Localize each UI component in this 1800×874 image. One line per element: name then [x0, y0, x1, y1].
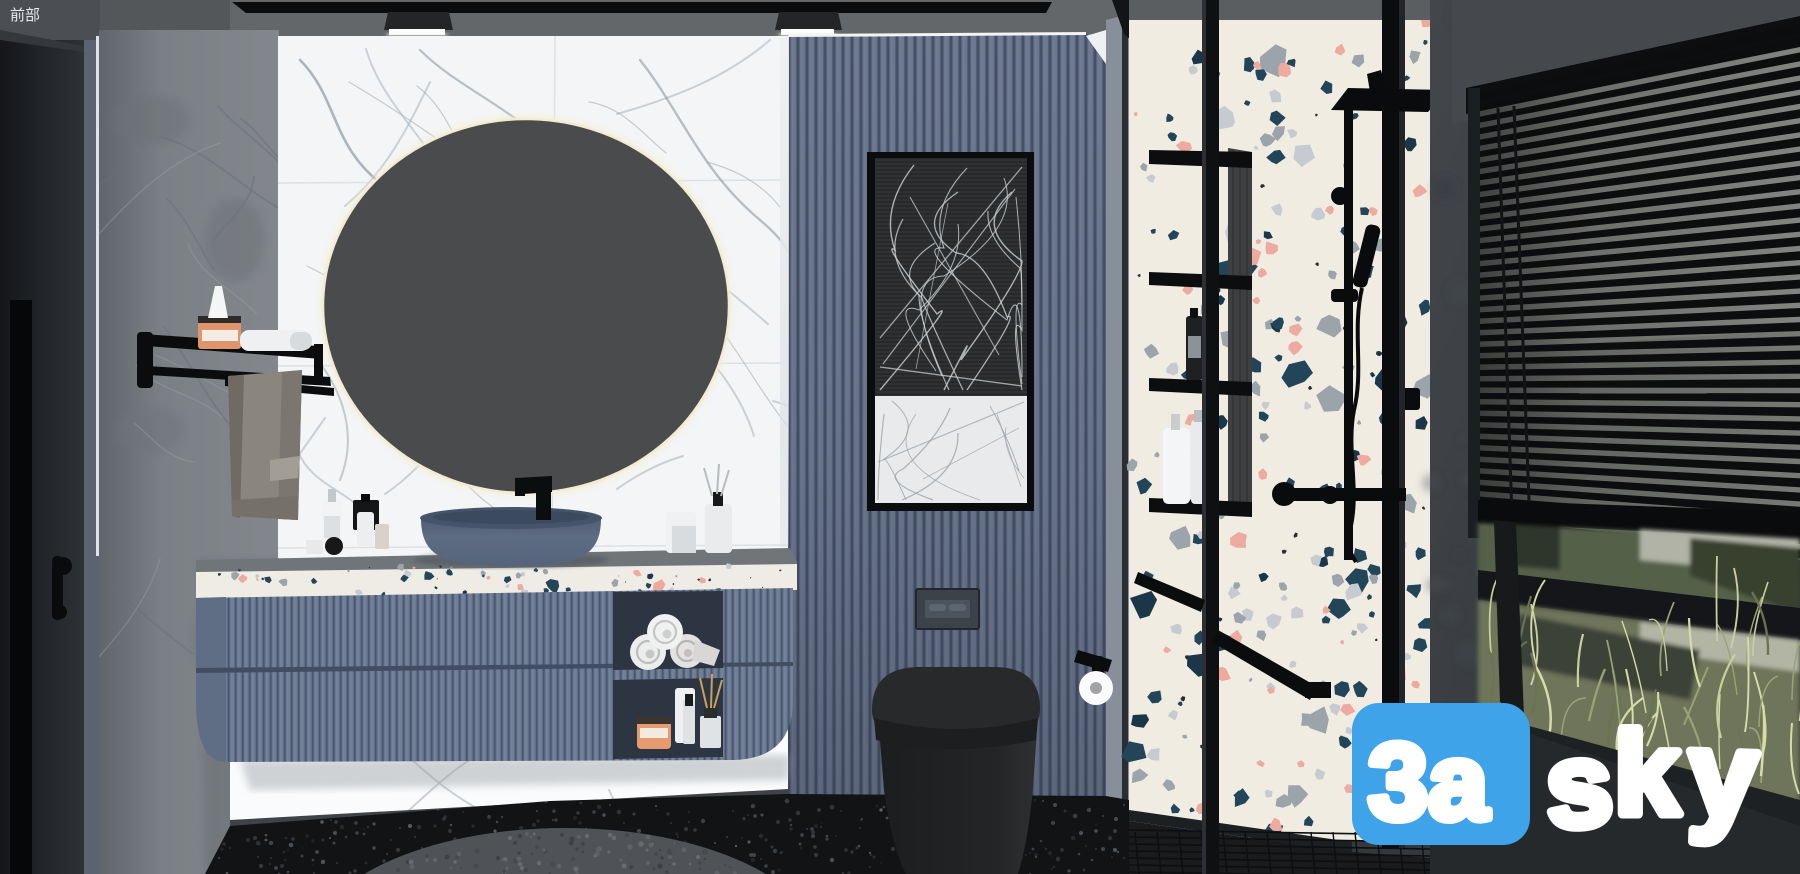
svg-text:3a: 3a	[1368, 721, 1489, 842]
svg-text:s: s	[1542, 716, 1616, 853]
svg-text:前部: 前部	[10, 7, 40, 24]
svg-text:k: k	[1614, 708, 1680, 840]
svg-text:y: y	[1686, 706, 1760, 846]
